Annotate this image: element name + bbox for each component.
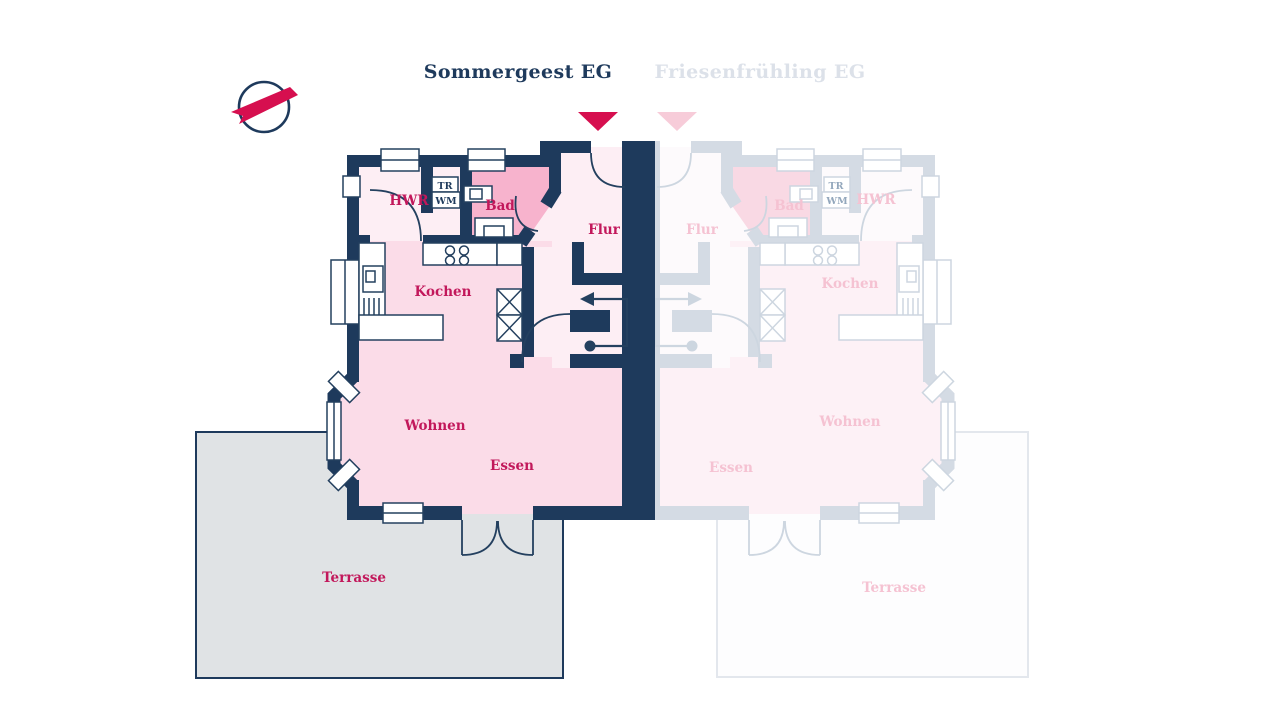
- label-washer: WM: [434, 196, 457, 207]
- floorplan-page: Sommergeest EG Friesenfrühling EG: [0, 0, 1280, 720]
- label-essen: Essen: [490, 458, 534, 474]
- label-flur: Flur: [588, 222, 621, 238]
- label-kochen: Kochen: [415, 284, 472, 300]
- label-flur-faded: Flur: [686, 222, 719, 238]
- label-bad: Bad: [485, 198, 515, 214]
- label-bad-faded: Bad: [774, 198, 804, 214]
- label-wohnen-faded: Wohnen: [818, 414, 880, 430]
- label-wohnen: Wohnen: [403, 418, 465, 434]
- label-kochen-faded: Kochen: [822, 276, 879, 292]
- entrance-marker-active: [578, 112, 618, 131]
- label-hwr: HWR: [389, 193, 429, 209]
- floorplan-canvas: HWR TR WM Bad Flur Kochen Wohnen Essen T…: [0, 0, 1280, 720]
- label-essen-faded: Essen: [709, 460, 753, 476]
- label-terrasse: Terrasse: [322, 570, 386, 586]
- label-terrasse-faded: Terrasse: [862, 580, 926, 596]
- label-hwr-faded: HWR: [856, 192, 896, 208]
- label-dryer: TR: [438, 181, 453, 192]
- label-washer-faded: WM: [825, 196, 848, 207]
- label-dryer-faded: TR: [829, 181, 844, 192]
- entrance-marker-inactive: [657, 112, 697, 131]
